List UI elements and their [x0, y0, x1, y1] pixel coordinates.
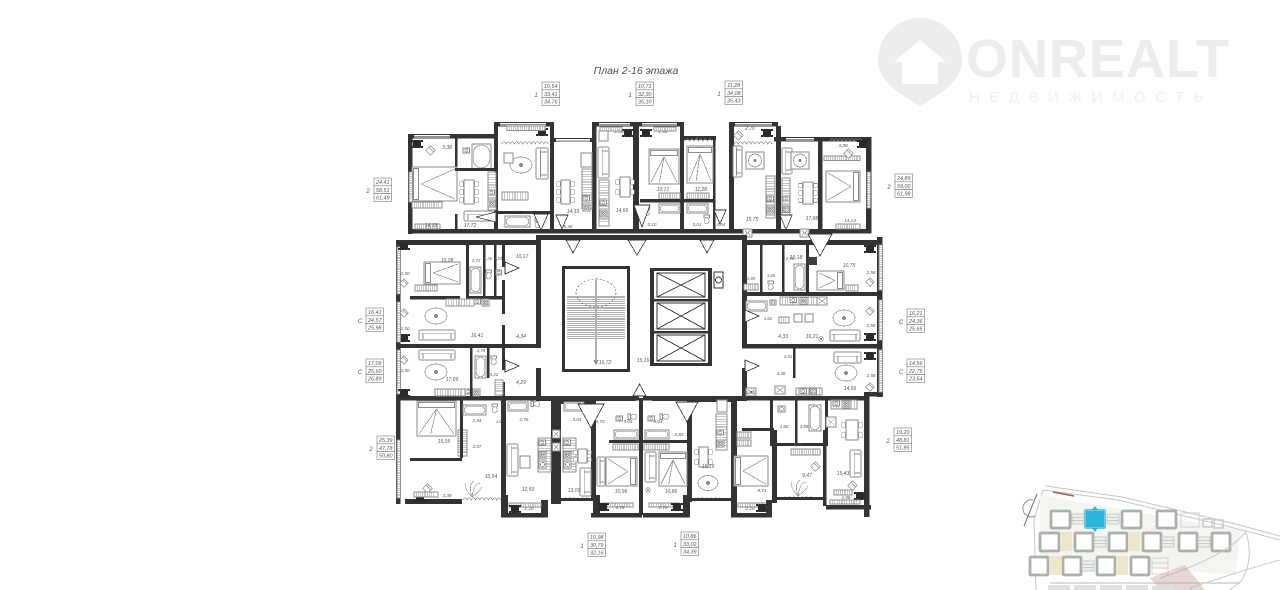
svg-text:32,30: 32,30: [638, 92, 652, 98]
svg-text:4,38: 4,38: [777, 371, 786, 376]
svg-text:14,33: 14,33: [567, 209, 580, 215]
svg-text:48,81: 48,81: [896, 438, 910, 444]
svg-text:2,74: 2,74: [615, 505, 625, 510]
svg-text:2,94: 2,94: [472, 418, 482, 423]
svg-text:24,36: 24,36: [908, 319, 923, 325]
svg-text:1,62: 1,62: [764, 316, 773, 321]
svg-text:12,50: 12,50: [522, 487, 535, 493]
svg-text:34,08: 34,08: [727, 91, 741, 97]
svg-text:25,98: 25,98: [367, 326, 382, 332]
svg-text:8,50: 8,50: [793, 442, 803, 448]
svg-text:35,10: 35,10: [638, 100, 652, 106]
svg-text:10,64: 10,64: [544, 84, 558, 90]
svg-text:2,76: 2,76: [519, 417, 529, 422]
svg-text:2,20: 2,20: [745, 506, 755, 511]
svg-text:15,05: 15,05: [438, 439, 451, 445]
svg-text:С: С: [899, 320, 904, 326]
svg-text:10,96: 10,96: [615, 489, 628, 495]
svg-text:17,72: 17,72: [464, 223, 477, 229]
svg-text:С: С: [358, 319, 363, 325]
svg-text:11,28: 11,28: [695, 187, 707, 193]
svg-text:26,89: 26,89: [367, 377, 382, 383]
svg-text:10,86: 10,86: [683, 534, 697, 540]
svg-text:4,34: 4,34: [516, 334, 526, 340]
svg-text:2,50: 2,50: [400, 368, 410, 373]
svg-text:10,98: 10,98: [590, 535, 604, 541]
svg-text:4,29: 4,29: [516, 380, 526, 386]
svg-text:1,89: 1,89: [747, 276, 756, 281]
svg-text:ONREALT: ONREALT: [966, 29, 1230, 89]
svg-text:3,88: 3,88: [800, 424, 809, 429]
svg-text:10,17: 10,17: [516, 254, 529, 260]
svg-text:59,00: 59,00: [897, 184, 911, 190]
svg-text:1: 1: [628, 93, 631, 99]
svg-text:2,74: 2,74: [658, 505, 668, 510]
svg-text:47,78: 47,78: [379, 446, 393, 452]
svg-text:3,38: 3,38: [443, 493, 452, 498]
svg-text:51,85: 51,85: [896, 446, 910, 452]
svg-text:25,65: 25,65: [908, 327, 923, 333]
svg-text:2,72: 2,72: [471, 258, 481, 263]
svg-text:24,89: 24,89: [896, 176, 911, 182]
svg-text:3,38: 3,38: [838, 143, 848, 149]
svg-text:25,39: 25,39: [378, 438, 393, 444]
svg-text:61,98: 61,98: [897, 192, 911, 198]
svg-text:2,58: 2,58: [866, 270, 876, 275]
svg-text:10,28: 10,28: [441, 258, 454, 264]
svg-text:3,01: 3,01: [693, 222, 702, 227]
svg-text:17,09: 17,09: [368, 361, 382, 367]
svg-text:3,04: 3,04: [654, 419, 663, 424]
svg-text:34,76: 34,76: [544, 100, 558, 106]
svg-text:3,04: 3,04: [624, 419, 633, 424]
svg-text:16,41: 16,41: [368, 310, 382, 316]
svg-text:1,60: 1,60: [767, 273, 776, 278]
svg-text:16,21: 16,21: [909, 311, 923, 317]
svg-text:5,40: 5,40: [564, 224, 573, 229]
svg-text:2: 2: [368, 447, 373, 453]
svg-text:15,43: 15,43: [837, 471, 850, 477]
svg-text:14,56: 14,56: [844, 386, 857, 392]
svg-text:33,41: 33,41: [544, 92, 558, 98]
svg-text:2: 2: [885, 439, 890, 445]
svg-text:4,22: 4,22: [490, 372, 499, 377]
svg-text:С: С: [358, 370, 363, 376]
svg-text:10,71: 10,71: [638, 84, 652, 90]
svg-text:14,13: 14,13: [425, 223, 438, 229]
svg-text:2,70: 2,70: [744, 126, 755, 132]
svg-text:14,66: 14,66: [616, 208, 629, 214]
svg-text:24,41: 24,41: [375, 180, 390, 186]
svg-text:11,28: 11,28: [727, 83, 740, 89]
svg-text:План 2-16 этажа: План 2-16 этажа: [594, 65, 679, 77]
svg-text:14,56: 14,56: [909, 361, 923, 367]
svg-text:2: 2: [365, 189, 370, 195]
svg-text:22,75: 22,75: [908, 369, 923, 375]
svg-text:33,02: 33,02: [683, 542, 697, 548]
svg-text:3,04: 3,04: [573, 417, 582, 422]
svg-text:50,80: 50,80: [379, 454, 393, 460]
svg-text:16,21: 16,21: [806, 334, 819, 340]
svg-text:2,58: 2,58: [866, 323, 876, 328]
svg-text:10,75: 10,75: [843, 263, 856, 269]
svg-text:26,95: 26,95: [742, 390, 755, 396]
svg-text:2,56: 2,56: [785, 256, 795, 261]
svg-text:3,51: 3,51: [784, 354, 793, 359]
svg-text:14,14: 14,14: [844, 218, 856, 223]
svg-text:2,20: 2,20: [524, 506, 534, 511]
svg-text:1: 1: [717, 92, 720, 98]
svg-text:24,57: 24,57: [367, 318, 382, 324]
svg-text:1,80: 1,80: [780, 424, 789, 429]
svg-text:13,09: 13,09: [568, 488, 581, 494]
svg-text:32,16: 32,16: [590, 551, 604, 557]
svg-text:10,54: 10,54: [485, 474, 498, 480]
svg-text:19,20: 19,20: [896, 430, 910, 436]
svg-text:10,71: 10,71: [657, 187, 670, 193]
svg-text:2,78: 2,78: [476, 348, 486, 353]
svg-text:23,54: 23,54: [908, 377, 923, 383]
svg-text:2,57: 2,57: [472, 444, 482, 449]
svg-text:3,10: 3,10: [648, 222, 657, 227]
svg-text:2,50: 2,50: [400, 271, 410, 276]
svg-text:17,09: 17,09: [446, 377, 459, 383]
svg-text:С: С: [899, 370, 904, 376]
svg-text:9,71: 9,71: [757, 488, 767, 494]
svg-text:9,47: 9,47: [802, 473, 812, 479]
svg-text:58,51: 58,51: [376, 188, 390, 194]
svg-text:34,39: 34,39: [683, 550, 697, 556]
svg-text:16,72: 16,72: [599, 360, 612, 366]
svg-text:61,49: 61,49: [376, 196, 390, 202]
svg-text:1: 1: [673, 543, 676, 549]
svg-text:16,41: 16,41: [471, 333, 484, 339]
svg-text:15,75: 15,75: [746, 217, 759, 223]
svg-text:30,79: 30,79: [590, 543, 604, 549]
svg-text:3,04: 3,04: [524, 210, 533, 215]
svg-text:1: 1: [534, 93, 537, 99]
svg-text:15,16: 15,16: [637, 358, 650, 364]
svg-text:4,33: 4,33: [778, 334, 788, 340]
svg-text:3,38: 3,38: [442, 145, 452, 151]
svg-text:1,98: 1,98: [842, 495, 851, 500]
svg-text:3,83: 3,83: [675, 432, 684, 437]
svg-text:3,70: 3,70: [596, 419, 605, 424]
svg-text:17,88: 17,88: [806, 216, 819, 222]
svg-text:1,26: 1,26: [484, 256, 493, 261]
svg-text:2: 2: [886, 185, 891, 191]
svg-text:4,04: 4,04: [717, 222, 726, 227]
svg-text:1: 1: [580, 544, 583, 550]
svg-text:35,43: 35,43: [727, 99, 741, 105]
svg-text:15,29: 15,29: [702, 464, 715, 470]
svg-text:1,23: 1,23: [494, 256, 503, 261]
svg-text:25,60: 25,60: [367, 369, 382, 375]
svg-text:НЕДВИЖИМОСТЬ: НЕДВИЖИМОСТЬ: [969, 89, 1213, 106]
svg-text:2,58: 2,58: [866, 373, 876, 378]
svg-text:2,50: 2,50: [400, 326, 410, 331]
svg-text:10,86: 10,86: [665, 489, 678, 495]
